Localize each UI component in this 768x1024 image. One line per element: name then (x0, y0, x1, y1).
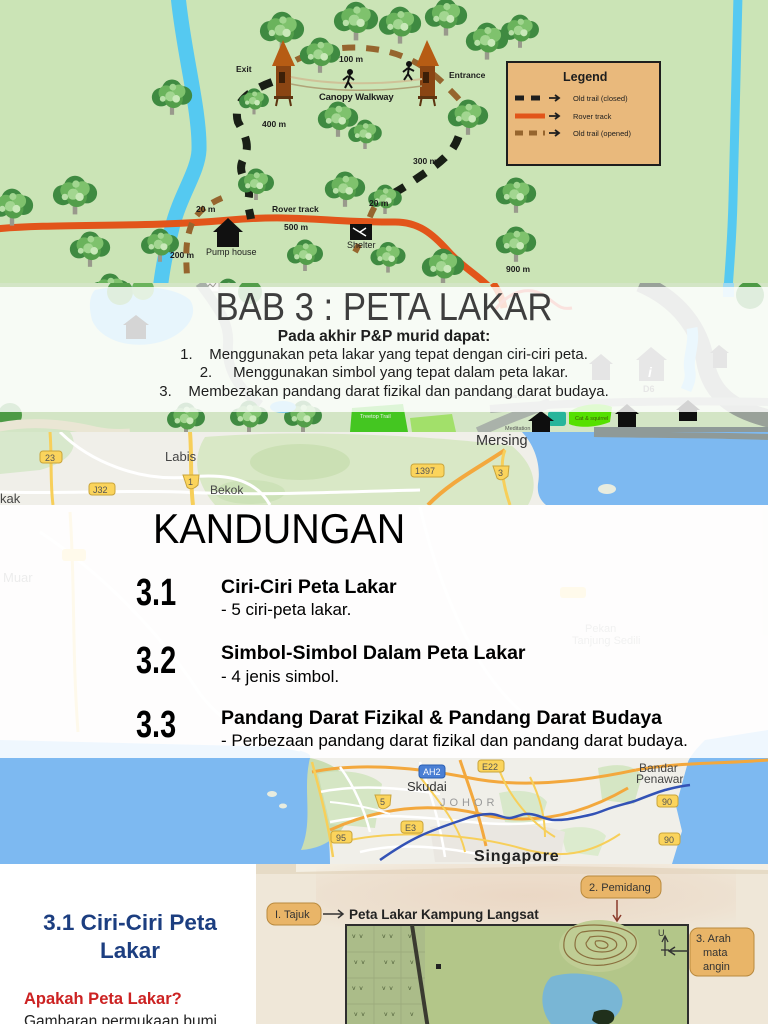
svg-text:angin: angin (703, 961, 730, 973)
svg-text:20 m: 20 m (369, 198, 389, 208)
svg-text:Skudai: Skudai (407, 779, 447, 794)
svg-text:400 m: 400 m (262, 119, 287, 129)
svg-text:mata: mata (703, 947, 728, 959)
svg-text:E22: E22 (482, 762, 498, 772)
svg-text:900 m: 900 m (506, 264, 531, 274)
svg-text:v: v (410, 1011, 414, 1018)
svg-text:90: 90 (664, 835, 674, 845)
svg-text:1397: 1397 (415, 466, 435, 476)
svg-text:500 m: 500 m (284, 222, 309, 232)
svg-text:Old trail (closed): Old trail (closed) (573, 94, 628, 103)
svg-text:Bekok: Bekok (210, 483, 244, 497)
svg-text:Cat & squirrel: Cat & squirrel (575, 416, 608, 422)
svg-text:23: 23 (45, 453, 55, 463)
svg-text:20 m: 20 m (196, 204, 216, 214)
svg-text:300 m: 300 m (413, 156, 438, 166)
svg-text:v v: v v (354, 959, 365, 966)
svg-text:kak: kak (0, 491, 21, 506)
svg-text:Old trail (opened): Old trail (opened) (573, 129, 631, 138)
svg-text:v v: v v (382, 985, 393, 992)
svg-text:Singapore: Singapore (474, 848, 559, 864)
svg-text:Rover track: Rover track (573, 112, 612, 121)
svg-text:v v: v v (382, 933, 393, 940)
svg-text:Shelter: Shelter (347, 240, 376, 250)
svg-text:3. Arah: 3. Arah (696, 933, 731, 945)
svg-text:U: U (658, 928, 665, 938)
svg-text:Labis: Labis (165, 449, 197, 464)
svg-text:90: 90 (662, 797, 672, 807)
svg-text:Legend: Legend (563, 70, 607, 84)
svg-text:2. Pemidang: 2. Pemidang (589, 882, 651, 894)
svg-text:Exit: Exit (236, 64, 252, 74)
svg-text:Treetop Trail: Treetop Trail (360, 414, 391, 420)
svg-text:Canopy Walkway: Canopy Walkway (319, 92, 394, 103)
svg-text:v: v (408, 985, 412, 992)
svg-text:v: v (410, 959, 414, 966)
svg-text:v v: v v (384, 959, 395, 966)
svg-text:v v: v v (354, 1011, 365, 1018)
svg-text:Peta Lakar Kampung Langsat: Peta Lakar Kampung Langsat (349, 907, 539, 922)
svg-text:I. Tajuk: I. Tajuk (275, 909, 310, 921)
svg-text:3: 3 (498, 468, 503, 478)
svg-text:JOHOR: JOHOR (440, 797, 499, 809)
svg-text:5: 5 (380, 797, 385, 807)
svg-text:v v: v v (384, 1011, 395, 1018)
svg-text:Penawar: Penawar (636, 772, 683, 786)
svg-text:Entrance: Entrance (449, 70, 486, 80)
svg-text:Rover track: Rover track (272, 204, 319, 214)
svg-text:E3: E3 (405, 823, 416, 833)
svg-text:95: 95 (336, 833, 346, 843)
svg-text:J32: J32 (93, 485, 108, 495)
svg-text:100 m: 100 m (339, 54, 364, 64)
svg-text:AH2: AH2 (423, 767, 441, 777)
svg-text:v v: v v (352, 933, 363, 940)
svg-text:200 m: 200 m (170, 250, 195, 260)
svg-text:1: 1 (188, 477, 193, 487)
svg-text:v v: v v (352, 985, 363, 992)
svg-text:Pump house: Pump house (206, 247, 257, 257)
svg-text:Mersing: Mersing (476, 433, 528, 449)
